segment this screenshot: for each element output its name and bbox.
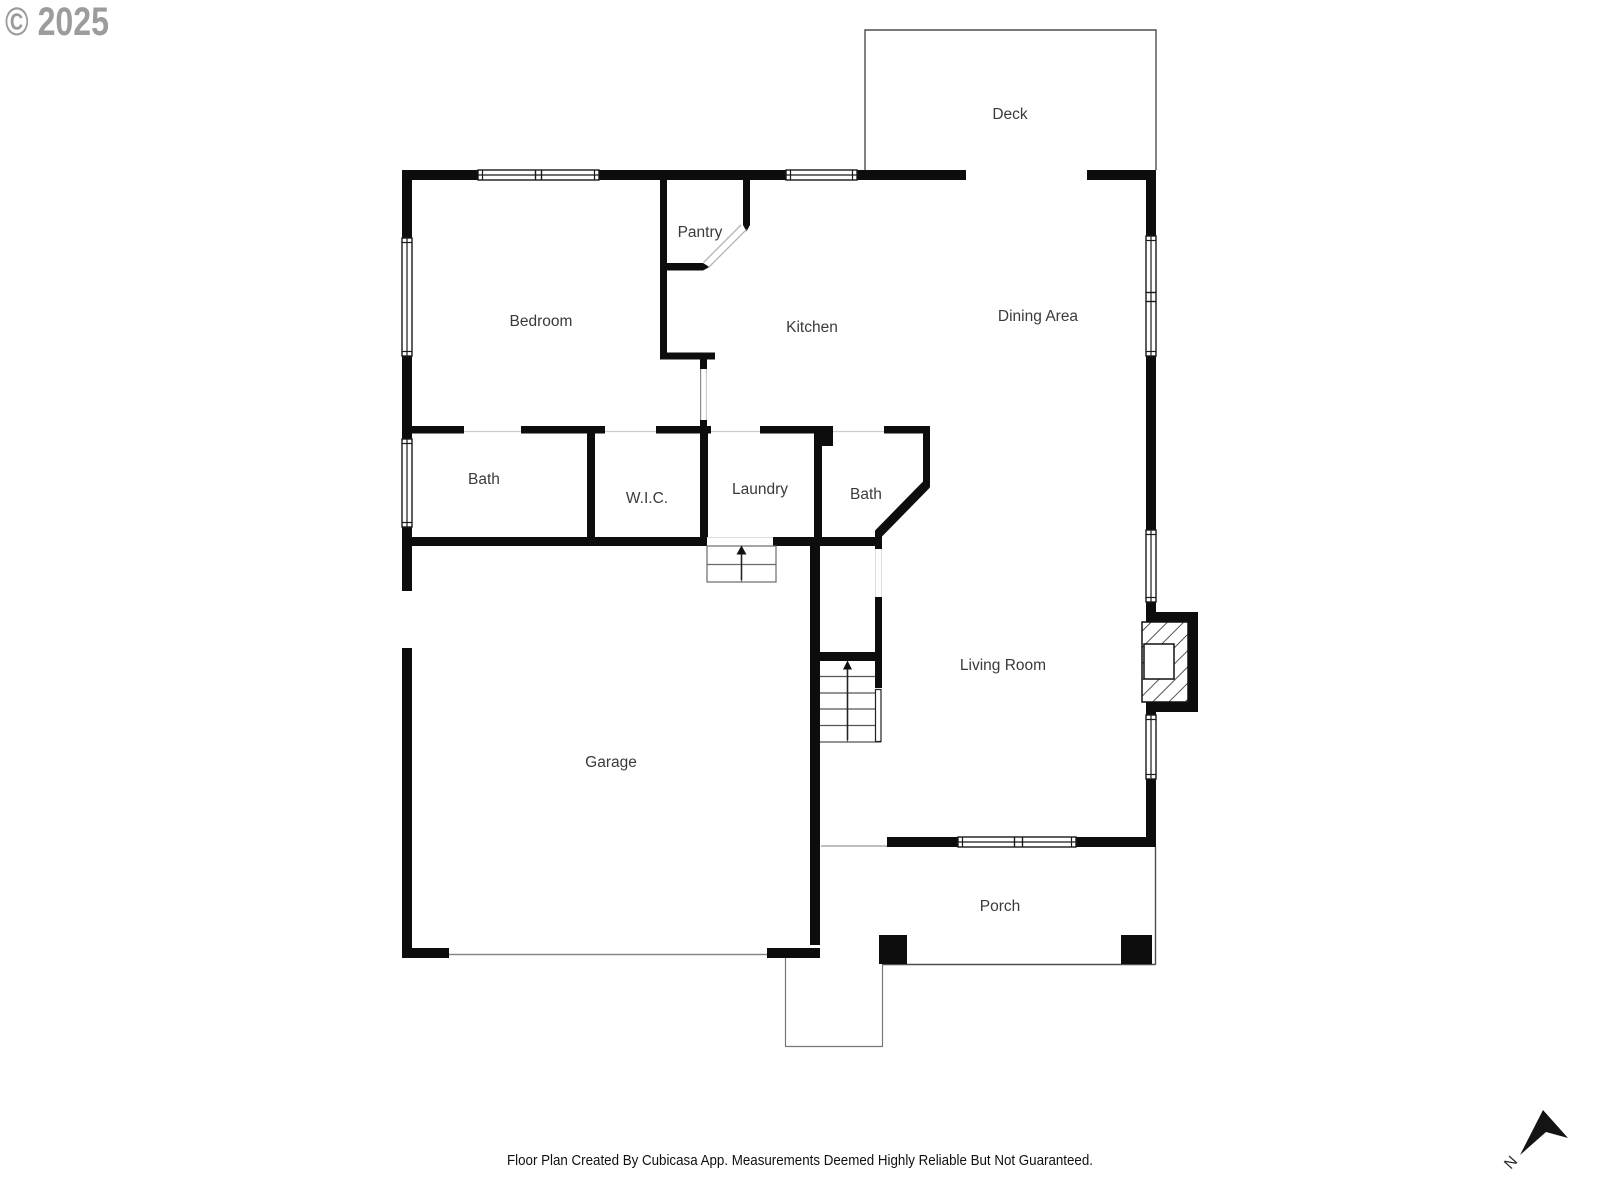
- svg-text:Kitchen: Kitchen: [786, 319, 838, 336]
- svg-text:Deck: Deck: [992, 106, 1028, 123]
- svg-text:W.I.C.: W.I.C.: [626, 490, 668, 507]
- svg-text:Porch: Porch: [980, 898, 1021, 915]
- svg-text:Pantry: Pantry: [678, 224, 723, 241]
- svg-text:Dining Area: Dining Area: [998, 308, 1079, 325]
- svg-text:Laundry: Laundry: [732, 481, 788, 498]
- svg-text:Garage: Garage: [585, 754, 637, 771]
- svg-text:Bedroom: Bedroom: [510, 313, 573, 330]
- svg-text:Living Room: Living Room: [960, 657, 1046, 674]
- svg-text:Floor Plan Created By Cubicasa: Floor Plan Created By Cubicasa App. Meas…: [507, 1152, 1093, 1169]
- svg-text:Bath: Bath: [468, 471, 500, 488]
- svg-text:© 2025: © 2025: [5, 0, 109, 44]
- svg-text:Bath: Bath: [850, 486, 882, 503]
